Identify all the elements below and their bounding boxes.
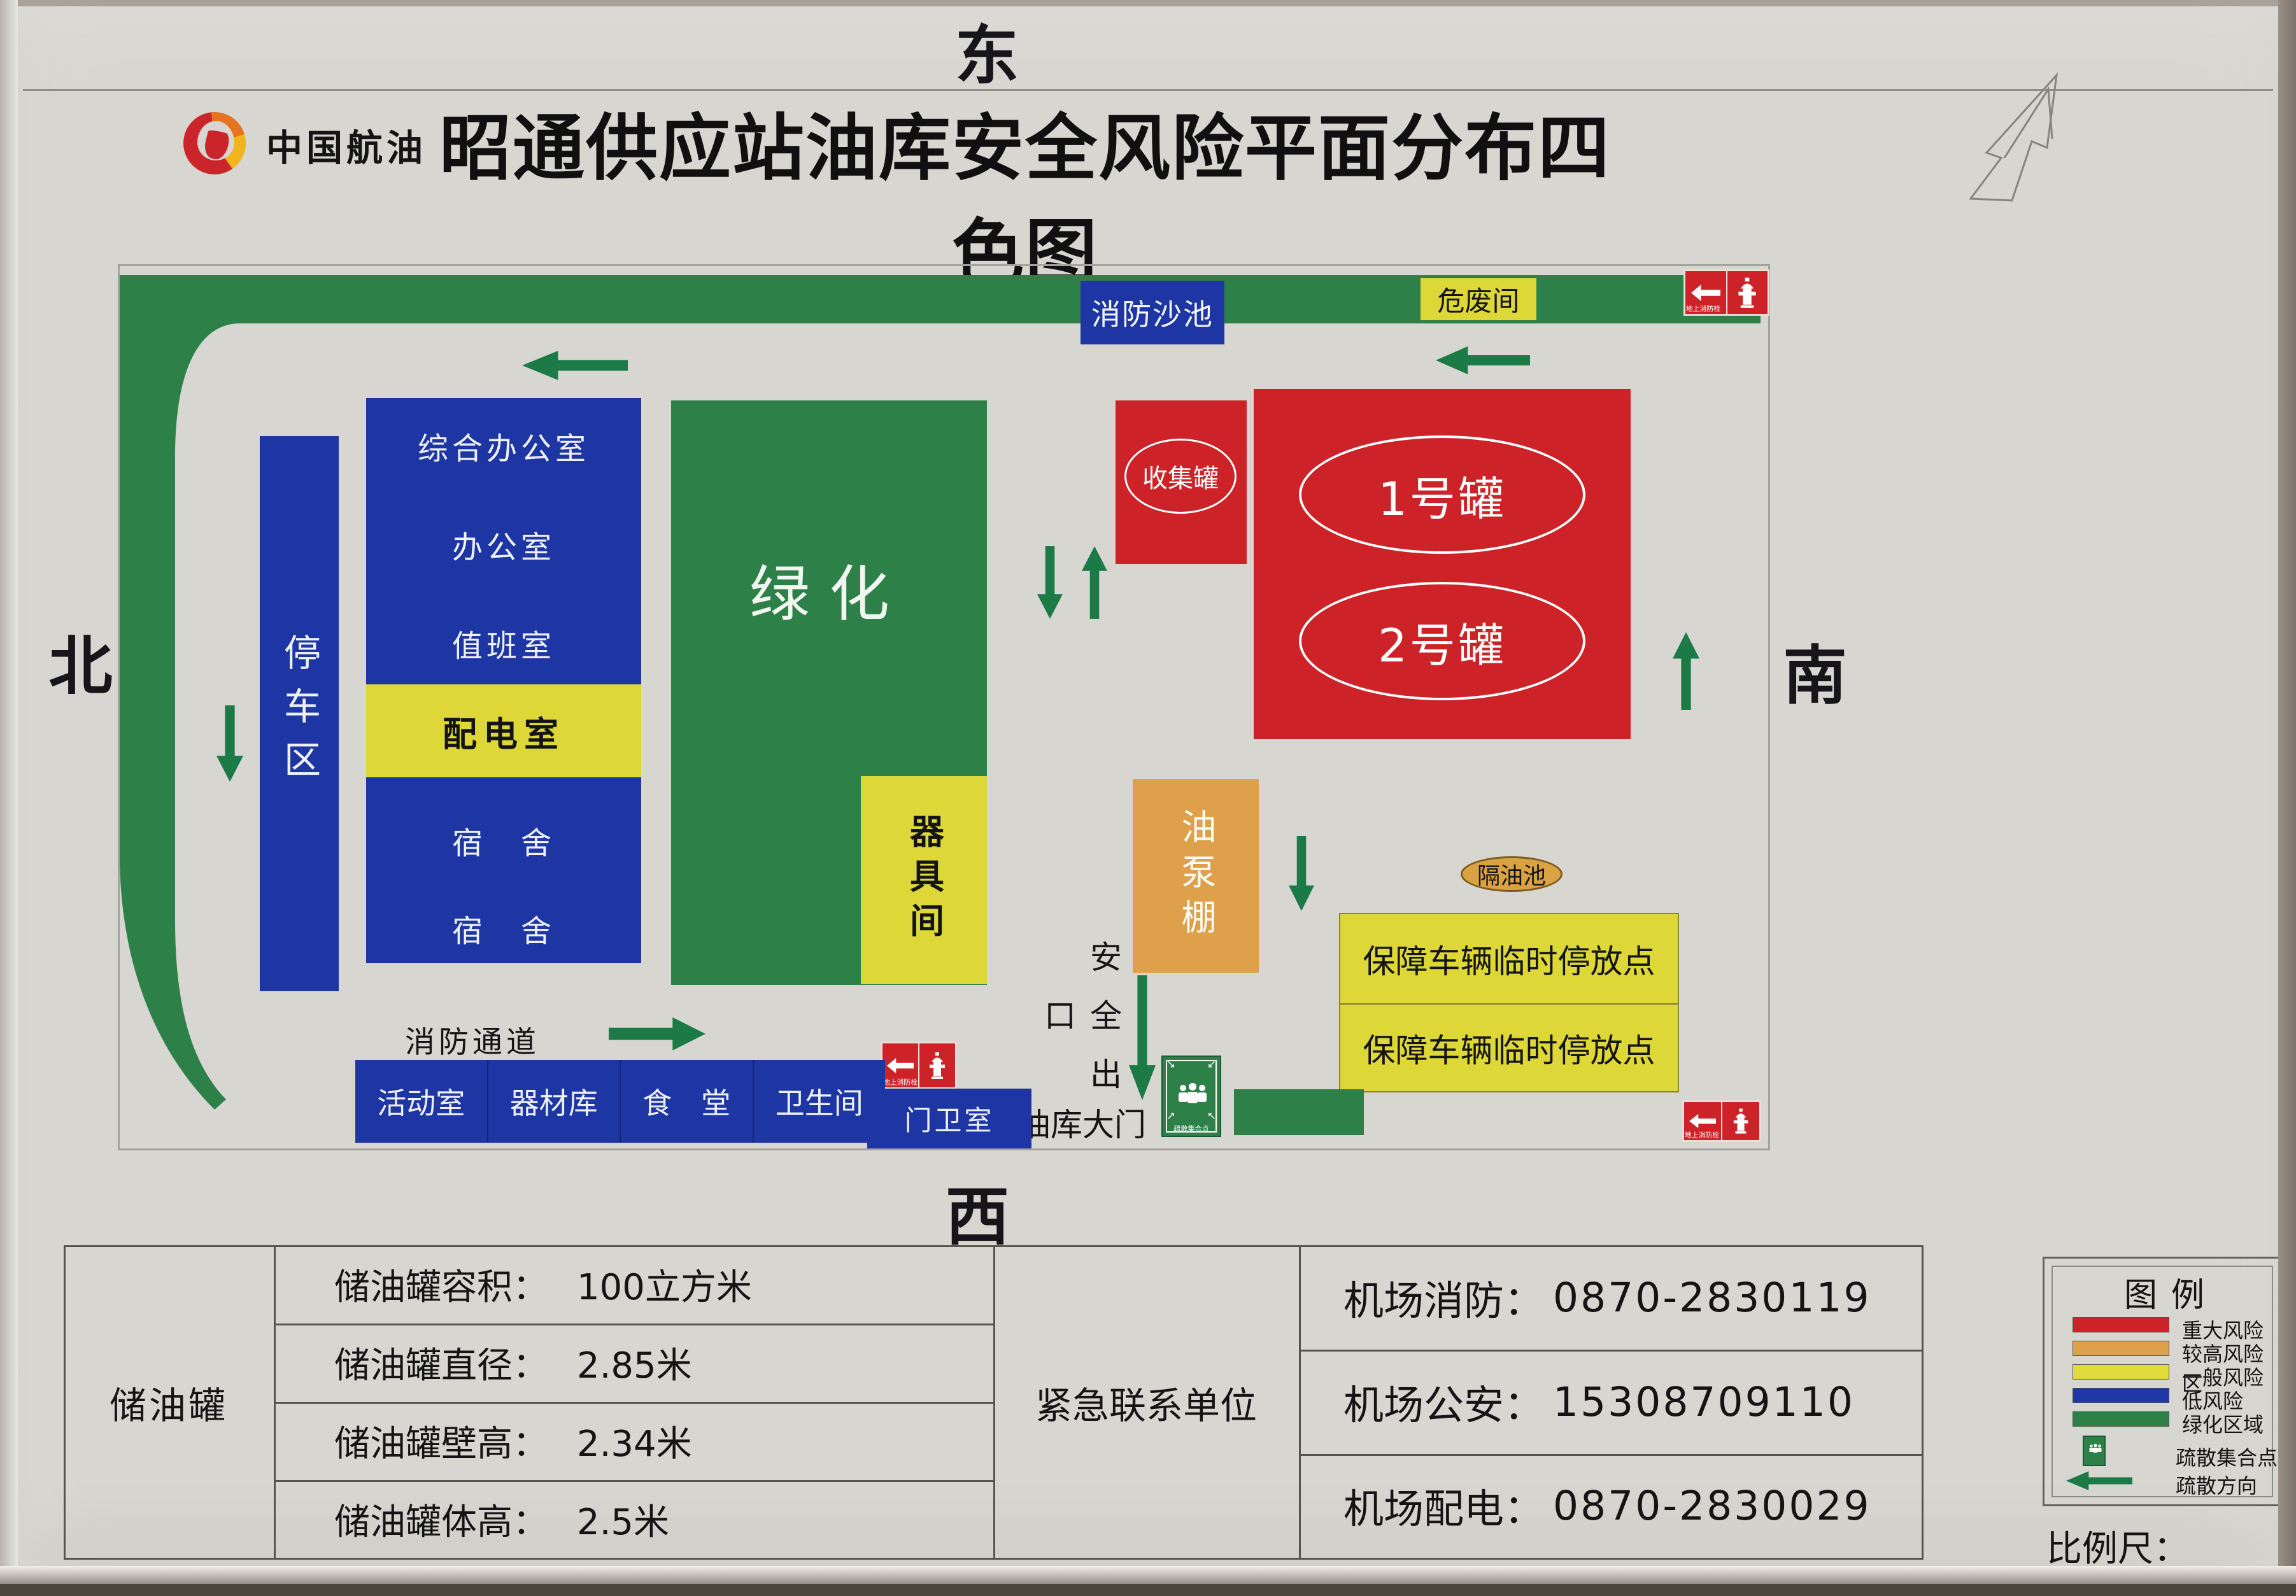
contact-number: 15308709110 xyxy=(1553,1379,1855,1425)
compass-south-label: 南 xyxy=(1775,630,1855,710)
spec-value: 100立方米 xyxy=(577,1259,752,1310)
hydrant-icon-half xyxy=(1727,271,1769,314)
compass-west-label: 西 xyxy=(936,1170,1019,1252)
evacuation-arrow-left-icon xyxy=(522,351,628,380)
evacuation-arrow-right-icon xyxy=(609,1017,705,1050)
hydrant-icon xyxy=(928,1048,947,1084)
table-row-tank-body-height: 储油罐体高：2.5米 xyxy=(274,1480,993,1558)
spec-value: 2.85米 xyxy=(577,1337,692,1388)
photo-of-safety-map-board: 东 中国航油 昭通供应站油库安全风险平面分布四色图 消防沙池 危废间 地上消防栓 xyxy=(0,0,2296,1596)
hydrant-arrow-half: 地上消防栓 xyxy=(882,1043,919,1088)
contact-number: 0870-2830029 xyxy=(1553,1483,1871,1529)
legend-assembly-icon xyxy=(2083,1436,2106,1466)
legend-title: 图例 xyxy=(2044,1273,2284,1311)
assembly-corner-arrow-icon: ↖ xyxy=(1207,1111,1216,1122)
fire-sand-pool: 消防沙池 xyxy=(1081,281,1224,344)
oil-pump-shed: 油泵棚 xyxy=(1133,779,1259,973)
fire-hydrant-sign: 地上消防栓 xyxy=(881,1042,957,1089)
legend-label-green-area: 绿化区域 xyxy=(2182,1409,2264,1438)
spec-value: 2.5米 xyxy=(577,1494,669,1545)
assembly-corner-arrow-icon: ↘ xyxy=(1166,1059,1175,1070)
page-title: 昭通供应站油库安全风险平面分布四色图 xyxy=(407,146,1643,242)
greenery-label: 绿化 xyxy=(671,554,987,624)
room-activity: 活动室 xyxy=(355,1060,488,1143)
left-arrow-icon xyxy=(887,1058,914,1073)
oil-separator-pool: 隔油池 xyxy=(1461,856,1563,892)
table-row-airport-police: 机场公安：15308709110 xyxy=(1299,1350,1922,1454)
legend-evacuation-arrow-icon xyxy=(2066,1471,2132,1490)
room-power-distribution: 配电室 xyxy=(366,684,641,777)
collection-tank-block: 收集罐 xyxy=(1116,400,1247,564)
green-strip-pad xyxy=(1234,1089,1364,1135)
spec-label: 储油罐直径： xyxy=(334,1337,548,1388)
tank-1: 1号罐 xyxy=(1299,435,1585,554)
table-row-tank-volume: 储油罐容积：100立方米 xyxy=(274,1245,993,1324)
office-building-block xyxy=(366,398,641,963)
contact-label: 机场公安： xyxy=(1343,1373,1544,1431)
compass-east-label: 东 xyxy=(917,11,1057,88)
assembly-sign-label: 疏散集合点 xyxy=(1165,1124,1218,1134)
spec-value: 2.34米 xyxy=(577,1415,692,1467)
scale-label: 比例尺： xyxy=(2046,1520,2276,1560)
legend-swatch-low-risk xyxy=(2073,1388,2169,1403)
contact-number: 0870-2830119 xyxy=(1553,1275,1871,1321)
people-icon xyxy=(1173,1082,1212,1110)
room-equipment-store: 器材库 xyxy=(488,1060,621,1143)
assembly-corner-arrow-icon: ↙ xyxy=(1207,1059,1216,1070)
tank-2: 2号罐 xyxy=(1299,582,1585,700)
spec-label: 储油罐壁高： xyxy=(334,1415,548,1467)
room-duty-room: 值班室 xyxy=(366,624,641,662)
hydrant-arrow-half: 地上消防栓 xyxy=(1683,1101,1722,1141)
room-dormitory-2: 宿 舍 xyxy=(366,909,641,947)
table-emergency-header: 紧急联系单位 xyxy=(993,1245,1299,1560)
metal-frame-right xyxy=(2278,0,2296,1596)
collection-tank-label: 收集罐 xyxy=(1124,439,1237,514)
table-tank-header: 储油罐 xyxy=(64,1245,274,1560)
contact-label: 机场消防： xyxy=(1343,1269,1544,1327)
china-aviation-oil-logo-icon xyxy=(183,112,246,174)
table-line xyxy=(64,1558,1922,1560)
spec-label: 储油罐体高： xyxy=(334,1494,548,1545)
left-arrow-icon xyxy=(1689,1114,1716,1128)
evacuation-arrow-down-icon xyxy=(1129,975,1156,1100)
metal-frame-top xyxy=(0,0,2296,6)
hydrant-arrow-half: 地上消防栓 xyxy=(1685,271,1727,314)
fire-hydrant-sign: 地上消防栓 xyxy=(1682,1100,1761,1142)
hazardous-waste-room: 危废间 xyxy=(1421,278,1536,320)
equipment-room-label: 器具间 xyxy=(899,814,949,947)
parking-area: 停车区 xyxy=(260,436,339,991)
table-row-airport-power: 机场配电：0870-2830029 xyxy=(1299,1454,1922,1558)
support-parking-row-2: 保障车辆临时停放点 xyxy=(1340,1005,1678,1091)
room-restroom: 卫生间 xyxy=(754,1060,886,1143)
people-icon xyxy=(2087,1443,2104,1456)
legend-label-direction: 疏散方向 xyxy=(2176,1470,2257,1499)
evacuation-arrow-down-icon xyxy=(216,705,243,782)
hydrant-sign-label: 地上消防栓 xyxy=(1685,1130,1719,1140)
tank-farm-block: 1号罐 2号罐 xyxy=(1254,389,1631,739)
oil-pump-shed-label: 油泵棚 xyxy=(1170,809,1221,944)
hydrant-icon xyxy=(1736,275,1758,311)
bottom-building-row: 活动室 器材库 食 堂 卫生间 xyxy=(355,1060,885,1143)
legend-swatch-major-risk xyxy=(2073,1317,2169,1332)
legend-swatch-higher-risk xyxy=(2073,1341,2169,1356)
legend-swatch-general-risk xyxy=(2073,1364,2169,1380)
equipment-room: 器具间 xyxy=(861,776,987,984)
evacuation-assembly-sign: ↘ ↙ ↗ ↖ 疏散集合点 xyxy=(1161,1056,1221,1137)
assembly-corner-arrow-icon: ↗ xyxy=(1166,1111,1175,1122)
fire-lane-label: 消防通道 xyxy=(405,1017,583,1056)
hydrant-sign-label: 地上消防栓 xyxy=(883,1077,918,1087)
hydrant-icon-half xyxy=(919,1043,956,1088)
compass-north-label: 北 xyxy=(41,621,120,700)
metal-frame-left xyxy=(0,0,18,1596)
room-general-office: 综合办公室 xyxy=(366,427,641,465)
evacuation-arrow-up-icon xyxy=(1082,546,1107,619)
metal-frame-bottom-shadow xyxy=(0,1584,2296,1596)
support-vehicle-parking-block: 保障车辆临时停放点 保障车辆临时停放点 xyxy=(1339,913,1679,1092)
evacuation-arrow-down-icon xyxy=(1289,836,1314,911)
legend-swatch-green-area xyxy=(2073,1411,2169,1427)
guard-room: 门卫室 xyxy=(867,1089,1031,1148)
evacuation-arrow-left-icon xyxy=(1436,346,1530,374)
table-row-tank-diameter: 储油罐直径：2.85米 xyxy=(274,1324,993,1402)
table-row-tank-wall-height: 储油罐壁高：2.34米 xyxy=(274,1402,993,1480)
table-line xyxy=(1922,1245,1924,1560)
parking-area-label: 停车区 xyxy=(273,633,326,794)
room-canteen: 食 堂 xyxy=(621,1060,754,1143)
hydrant-icon xyxy=(1732,1105,1750,1137)
left-arrow-icon xyxy=(1691,285,1720,301)
legend-label-assembly: 疏散集合点 xyxy=(2176,1442,2278,1471)
support-parking-row-1: 保障车辆临时停放点 xyxy=(1340,914,1678,1003)
north-arrow-sketch-icon xyxy=(1952,64,2098,210)
fire-hydrant-sign: 地上消防栓 xyxy=(1683,269,1769,316)
spec-label: 储油罐容积： xyxy=(334,1259,548,1310)
legend-box: 图例 重大风险 较高风险区 一般风险 低风险 绿化区域 疏散集合点 疏散方向 xyxy=(2043,1257,2282,1506)
room-dormitory-1: 宿 舍 xyxy=(366,821,641,859)
depot-gate-label: 油库大门 xyxy=(1019,1103,1146,1141)
hydrant-icon-half xyxy=(1722,1101,1760,1141)
table-row-airport-fire: 机场消防：0870-2830119 xyxy=(1299,1245,1922,1350)
room-office: 办公室 xyxy=(366,525,641,563)
evacuation-arrow-down-icon xyxy=(1037,546,1063,619)
evacuation-arrow-up-icon xyxy=(1673,632,1699,710)
metal-frame-bottom xyxy=(0,1566,2296,1584)
hydrant-sign-label: 地上消防栓 xyxy=(1686,304,1720,313)
contact-label: 机场配电： xyxy=(1343,1477,1544,1535)
